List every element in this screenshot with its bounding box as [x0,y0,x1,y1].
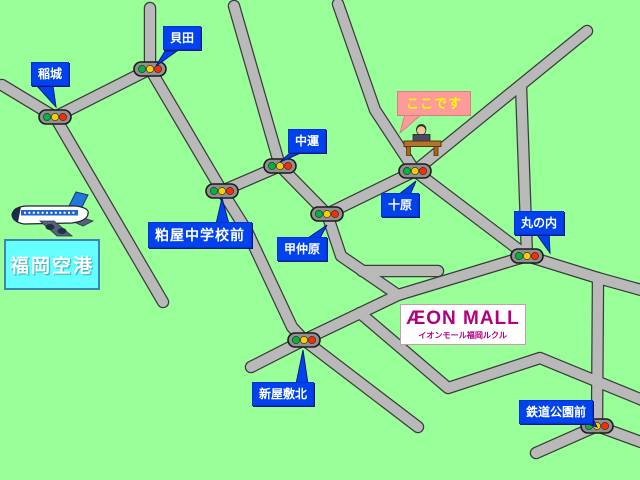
traffic-signal-icon [511,249,543,263]
label-marunouchi: 丸の内 [514,211,564,235]
traffic-signal-icon [134,62,166,76]
aeon-mall-title: ÆON MALL [406,309,520,328]
label-tetsudo-koen-mae: 鉄道公園前 [519,400,593,424]
destination-callout: ここです [397,91,471,116]
traffic-signal-icon [311,207,343,221]
label-kasuya-jhs: 粕屋中学校前 [148,222,252,248]
traffic-signal-icon [264,159,296,173]
traffic-signal-icon [206,184,238,198]
reception-desk-icon [404,124,441,155]
access-map: 稲城 貝田 中運 十原 甲仲原 粕屋中学校前 丸の内 新屋敷北 鉄道公園前 ここ… [0,0,640,480]
aeon-mall-subtitle: イオンモール福岡ルクル [419,331,508,339]
label-tobaru: 十原 [381,193,419,217]
aeon-mall-logo: ÆON MALL イオンモール福岡ルクル [400,304,526,345]
airplane-icon [12,192,93,236]
label-shinyashiki-kita: 新屋敷北 [252,382,314,406]
traffic-signal-icon [288,333,320,347]
airport-label: 福岡空港 [4,239,100,290]
label-konakabaru: 甲仲原 [277,237,327,261]
label-inagi: 稲城 [31,62,69,86]
label-kaida: 貝田 [163,26,201,50]
traffic-signal-icon [399,164,431,178]
traffic-signal-icon [39,110,71,124]
label-nakaun: 中運 [288,129,326,153]
